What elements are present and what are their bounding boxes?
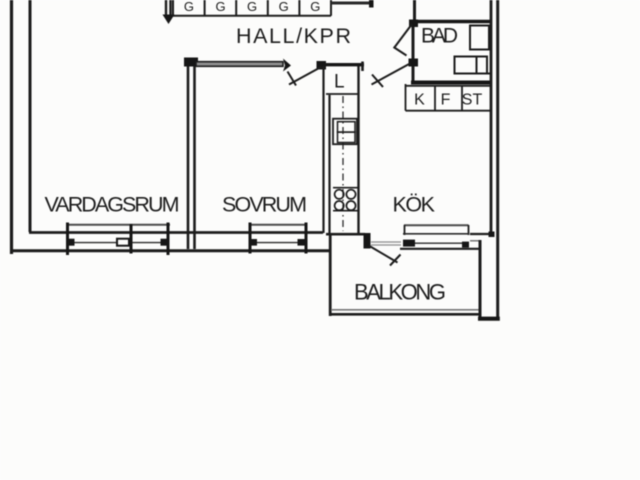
svg-text:K: K [414, 92, 425, 109]
svg-text:SOVRUM: SOVRUM [222, 192, 307, 216]
svg-text:KÖK: KÖK [393, 193, 436, 217]
svg-text:G: G [184, 0, 194, 14]
svg-text:G: G [215, 0, 225, 14]
svg-text:BALKONG: BALKONG [354, 279, 446, 304]
svg-text:F: F [441, 92, 451, 109]
svg-text:G: G [247, 0, 257, 14]
svg-text:BAD: BAD [421, 24, 458, 47]
svg-text:G: G [310, 0, 320, 14]
svg-text:VARDAGSRUM: VARDAGSRUM [45, 192, 180, 216]
svg-text:HALL/KPR: HALL/KPR [236, 24, 351, 48]
svg-text:ST: ST [462, 92, 483, 109]
svg-text:G: G [279, 0, 289, 14]
svg-text:L: L [334, 72, 345, 93]
